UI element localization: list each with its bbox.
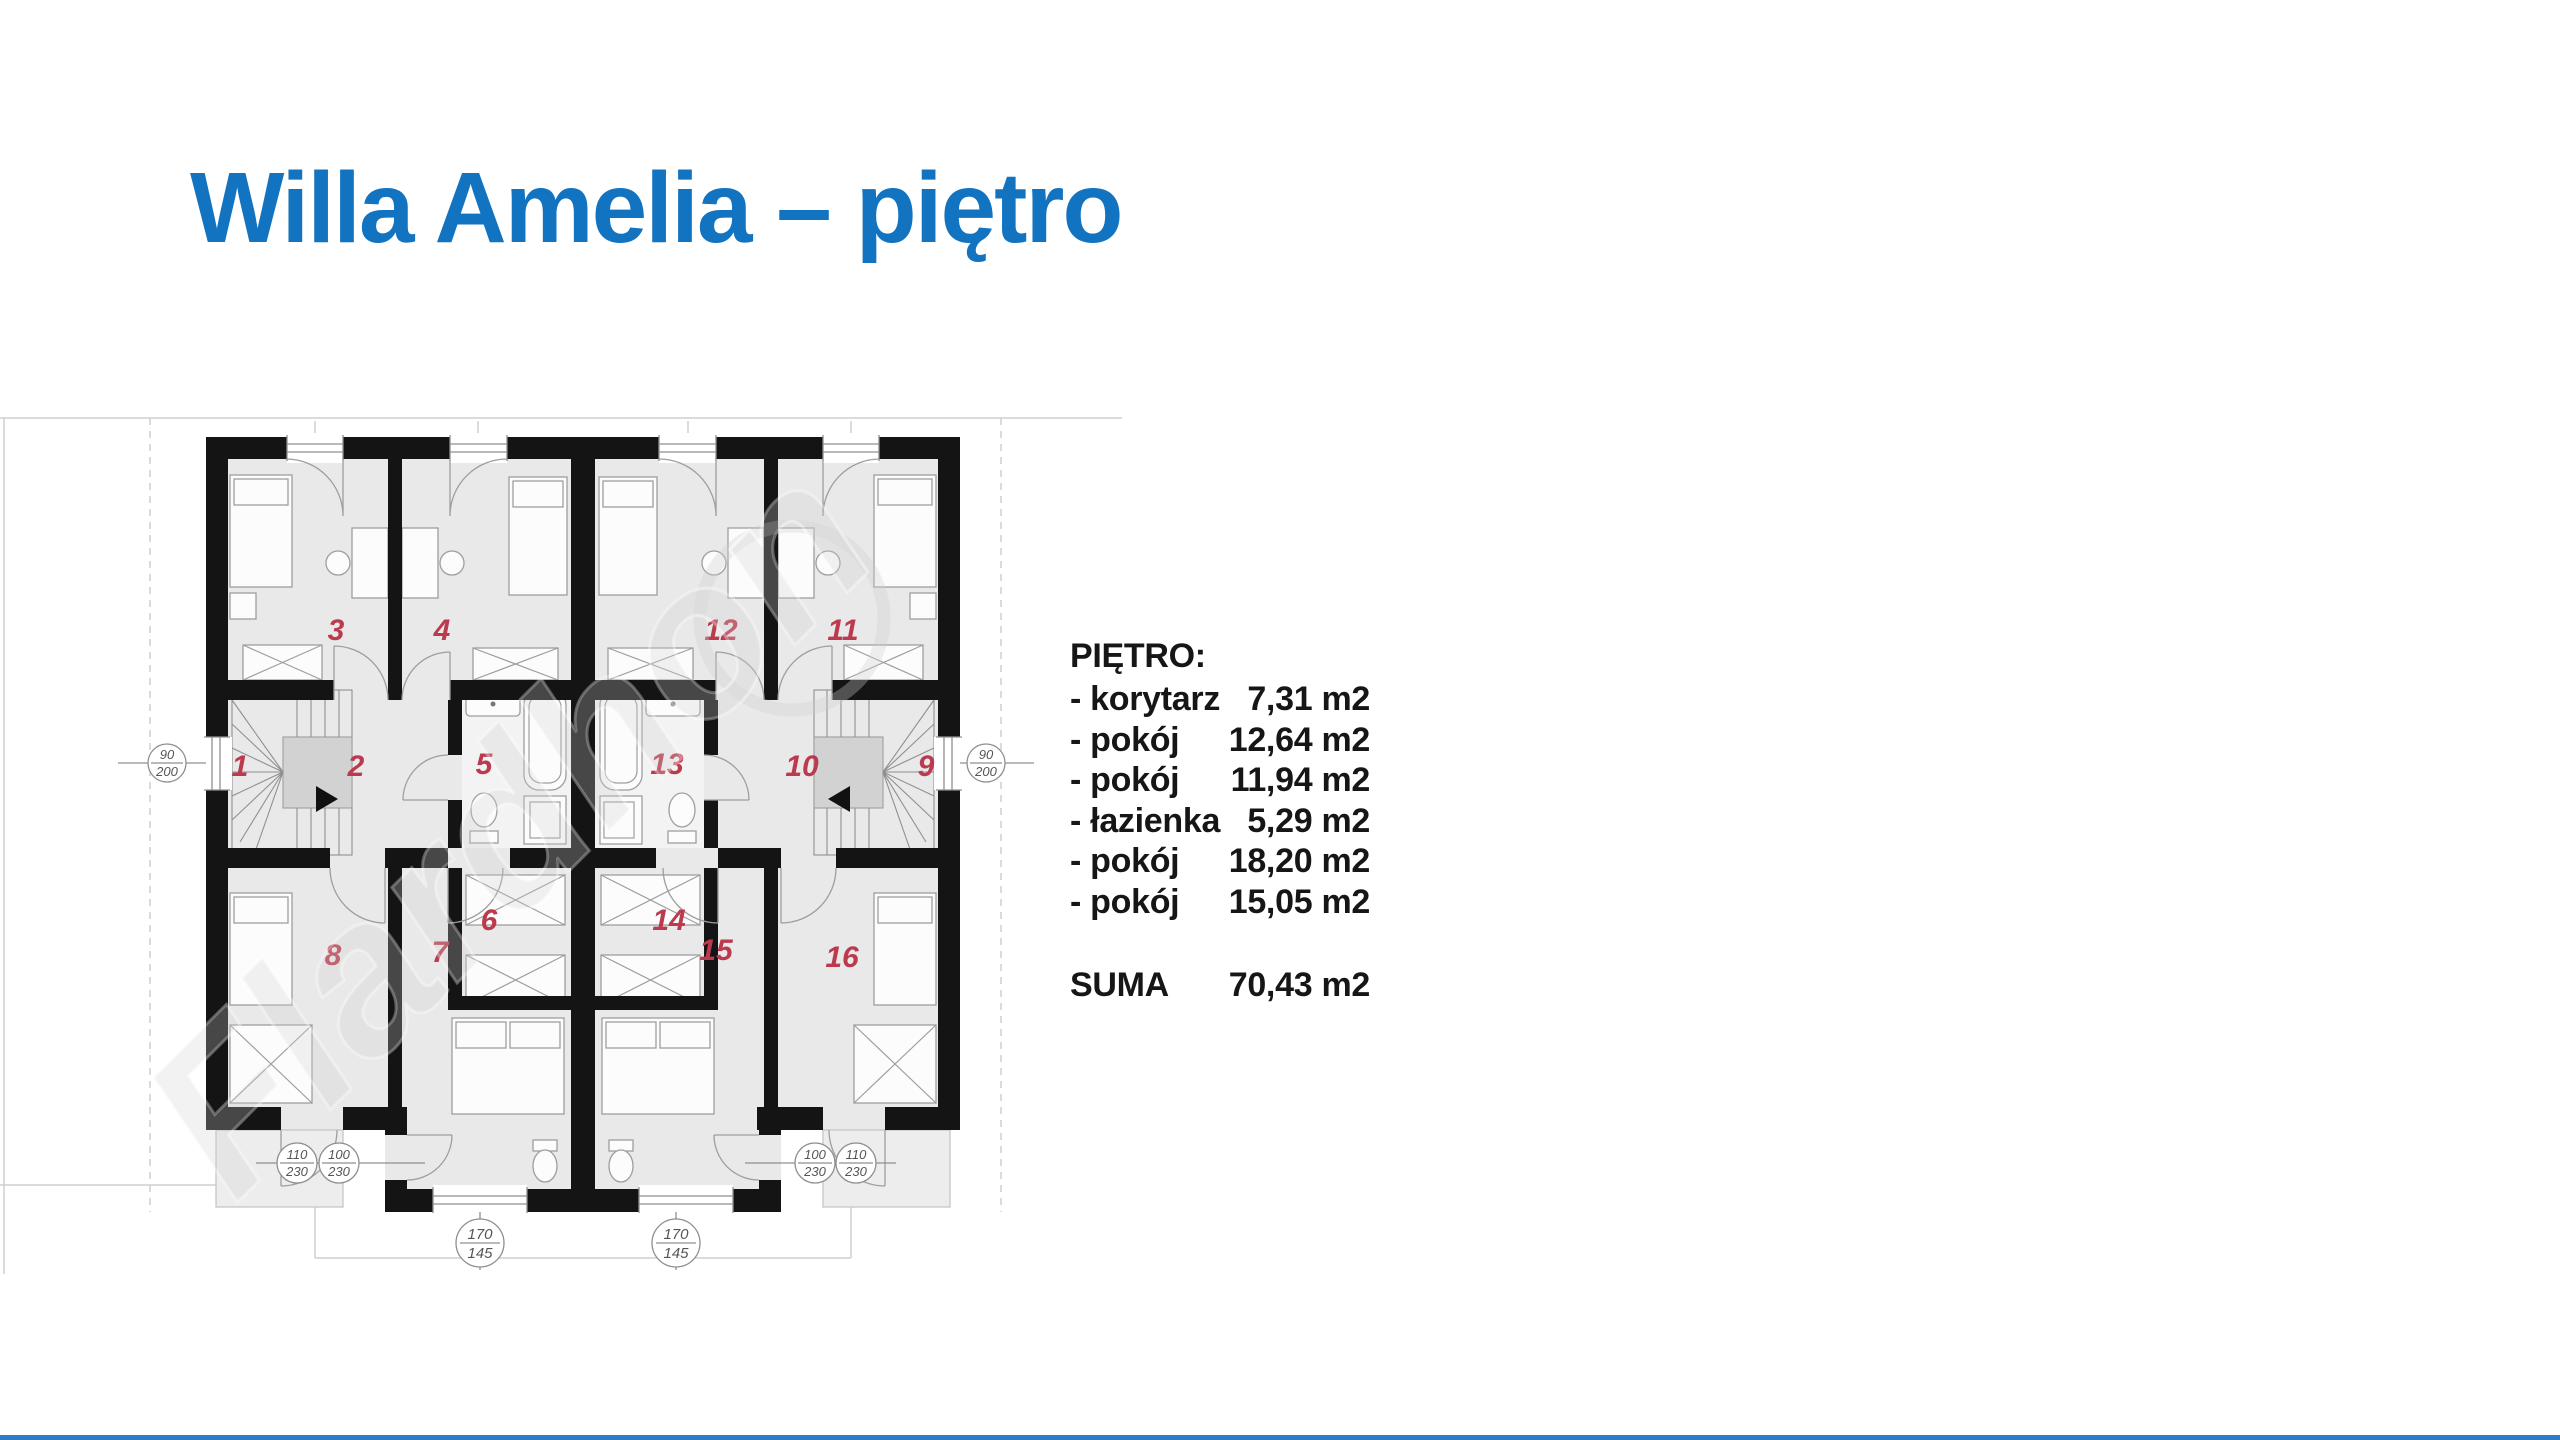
room-number: 2 bbox=[347, 750, 365, 783]
closet bbox=[854, 1025, 936, 1103]
room-number: 3 bbox=[328, 614, 345, 647]
area-row: - korytarz 7,31 m2 bbox=[1070, 679, 1370, 720]
svg-text:200: 200 bbox=[974, 764, 997, 779]
svg-text:145: 145 bbox=[467, 1245, 493, 1262]
toilet bbox=[533, 1140, 557, 1182]
window bbox=[639, 1185, 733, 1215]
area-row: - pokój 11,94 m2 bbox=[1070, 760, 1370, 801]
svg-text:200: 200 bbox=[155, 764, 178, 779]
bed bbox=[874, 893, 936, 1005]
toilet bbox=[609, 1140, 633, 1182]
bed bbox=[230, 475, 292, 587]
room-number: 1 bbox=[232, 750, 249, 783]
svg-text:170: 170 bbox=[663, 1226, 689, 1243]
area-heading: PIĘTRO: bbox=[1070, 634, 1370, 679]
room-number: 15 bbox=[699, 934, 734, 967]
nightstand bbox=[910, 593, 936, 619]
floor-plan: 1 2 3 4 5 6 7 8 9 10 11 12 13 14 15 16 9… bbox=[0, 390, 1150, 1290]
area-row: - pokój 15,05 m2 bbox=[1070, 882, 1370, 923]
svg-text:100: 100 bbox=[804, 1147, 826, 1162]
room-number: 16 bbox=[825, 941, 859, 974]
area-value: 15,05 m2 bbox=[1229, 882, 1370, 923]
area-label: - pokój bbox=[1070, 760, 1179, 801]
svg-text:230: 230 bbox=[803, 1164, 826, 1179]
dimension-bottom-center-left: 170 145 bbox=[456, 1212, 504, 1270]
area-label: - pokój bbox=[1070, 720, 1179, 761]
page-title: Willa Amelia – piętro bbox=[190, 148, 1121, 268]
area-value: 12,64 m2 bbox=[1229, 720, 1370, 761]
bottom-accent-line bbox=[0, 1435, 2560, 1440]
area-value: 5,29 m2 bbox=[1247, 801, 1370, 842]
dimension-bottom-center-right: 170 145 bbox=[652, 1212, 700, 1270]
dimension-left: 90 200 bbox=[118, 744, 206, 782]
dimension-right: 90 200 bbox=[960, 744, 1034, 782]
svg-text:230: 230 bbox=[844, 1164, 867, 1179]
area-row: - łazienka 5,29 m2 bbox=[1070, 801, 1370, 842]
area-label: - pokój bbox=[1070, 882, 1179, 923]
svg-text:110: 110 bbox=[846, 1147, 867, 1162]
area-label: - łazienka bbox=[1070, 801, 1220, 842]
window bbox=[934, 737, 964, 790]
area-value: 11,94 m2 bbox=[1231, 760, 1370, 801]
svg-text:170: 170 bbox=[467, 1226, 493, 1243]
window bbox=[450, 433, 507, 463]
room-number: 4 bbox=[433, 614, 451, 647]
closet bbox=[243, 645, 322, 680]
area-value: 18,20 m2 bbox=[1229, 841, 1370, 882]
double-bed bbox=[602, 1018, 714, 1114]
room-number: 9 bbox=[918, 750, 935, 783]
total-value: 70,43 m2 bbox=[1229, 965, 1370, 1005]
svg-text:145: 145 bbox=[663, 1245, 689, 1262]
window bbox=[287, 433, 343, 463]
room-number: 14 bbox=[652, 904, 686, 937]
area-row: - pokój 18,20 m2 bbox=[1070, 841, 1370, 882]
room-number: 10 bbox=[785, 750, 819, 783]
svg-text:90: 90 bbox=[979, 747, 994, 762]
bed bbox=[509, 477, 567, 595]
window bbox=[823, 433, 879, 463]
window bbox=[202, 737, 232, 790]
area-label: - pokój bbox=[1070, 841, 1179, 882]
area-row: - pokój 12,64 m2 bbox=[1070, 720, 1370, 761]
area-summary: PIĘTRO: - korytarz 7,31 m2 - pokój 12,64… bbox=[1070, 634, 1370, 1005]
total-label: SUMA bbox=[1070, 965, 1169, 1005]
area-total-row: SUMA 70,43 m2 bbox=[1070, 965, 1370, 1005]
nightstand bbox=[230, 593, 256, 619]
slide: Willa Amelia – piętro bbox=[0, 0, 2560, 1440]
window bbox=[433, 1185, 527, 1215]
area-label: - korytarz bbox=[1070, 679, 1220, 720]
area-value: 7,31 m2 bbox=[1247, 679, 1370, 720]
svg-text:90: 90 bbox=[160, 747, 175, 762]
